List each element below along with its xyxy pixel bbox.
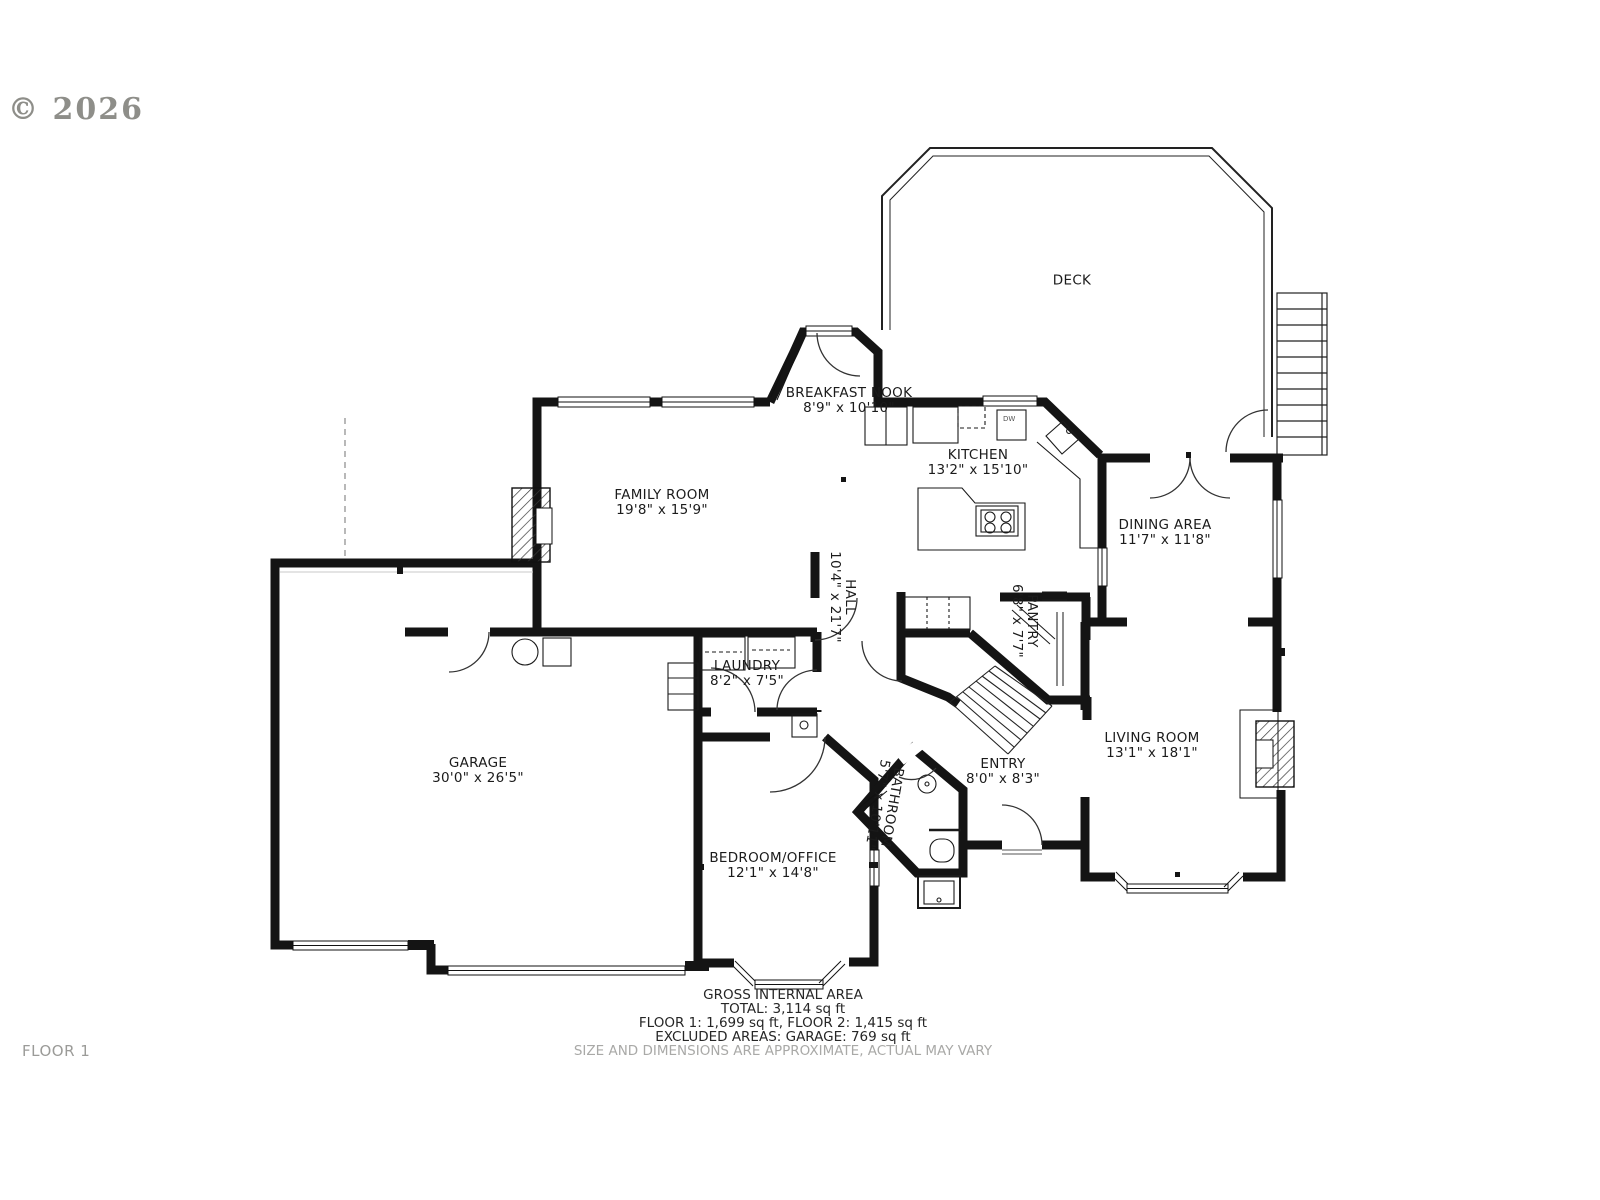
room-label-hall: HALL 10'4" x 21'7" xyxy=(827,551,857,643)
garage-closet-door-arc xyxy=(449,632,489,672)
deck-stairs-door-arc xyxy=(1226,410,1268,452)
area-disclaimer: SIZE AND DIMENSIONS ARE APPROXIMATE, ACT… xyxy=(483,1045,1083,1059)
room-label-bedroom-office: BEDROOM/OFFICE 12'1" x 14'8" xyxy=(709,851,836,881)
deck-railing xyxy=(882,148,1272,437)
bay-windows xyxy=(731,872,1243,989)
fireplace-family-room xyxy=(512,488,552,562)
room-label-dining-area: DINING AREA 11'7" x 11'8" xyxy=(1119,518,1212,548)
room-label-deck: DECK xyxy=(1053,274,1091,289)
deck-stairs xyxy=(1277,293,1327,455)
deck-nook-door-arc xyxy=(817,333,860,376)
dining-french-door-right-arc xyxy=(1190,458,1230,498)
bathroom-fixtures xyxy=(918,775,961,908)
interior-stairs xyxy=(950,666,1052,754)
windows xyxy=(558,326,1282,886)
bedroom-door-arc xyxy=(770,737,825,792)
fireplace-living-room xyxy=(1240,710,1294,798)
floor-number-label: FLOOR 1 xyxy=(22,1042,90,1060)
room-label-pantry: PANTRY 6'8" x 7'7" xyxy=(1009,584,1039,658)
room-label-laundry: LAUNDRY 8'2" x 7'5" xyxy=(710,659,784,689)
dishwasher-label: DW xyxy=(1003,415,1015,423)
hall-door-arc xyxy=(862,641,902,681)
room-label-entry: ENTRY 8'0" x 8'3" xyxy=(966,757,1040,787)
bathroom-door-gap xyxy=(900,744,920,760)
copyright-watermark: © 2026 xyxy=(8,92,144,127)
area-summary: GROSS INTERNAL AREA TOTAL: 3,114 sq ft F… xyxy=(483,989,1083,1059)
dining-french-door-left-arc xyxy=(1150,458,1190,498)
entry-porch xyxy=(1002,850,1042,854)
room-label-family-room: FAMILY ROOM 19'8" x 15'9" xyxy=(614,488,709,518)
room-label-breakfast-nook: BREAKFAST NOOK 8'9" x 10'10" xyxy=(786,386,913,416)
room-label-living-room: LIVING ROOM 13'1" x 18'1" xyxy=(1104,731,1199,761)
room-label-garage: GARAGE 30'0" x 26'5" xyxy=(432,756,524,786)
bathroom-sink xyxy=(918,775,936,793)
room-label-kitchen: KITCHEN 13'2" x 15'10" xyxy=(928,448,1029,478)
garage-doors xyxy=(293,941,685,975)
toilet xyxy=(930,839,954,862)
floor-plan-page: DW xyxy=(0,0,1600,1200)
front-door-arc xyxy=(1002,805,1042,845)
